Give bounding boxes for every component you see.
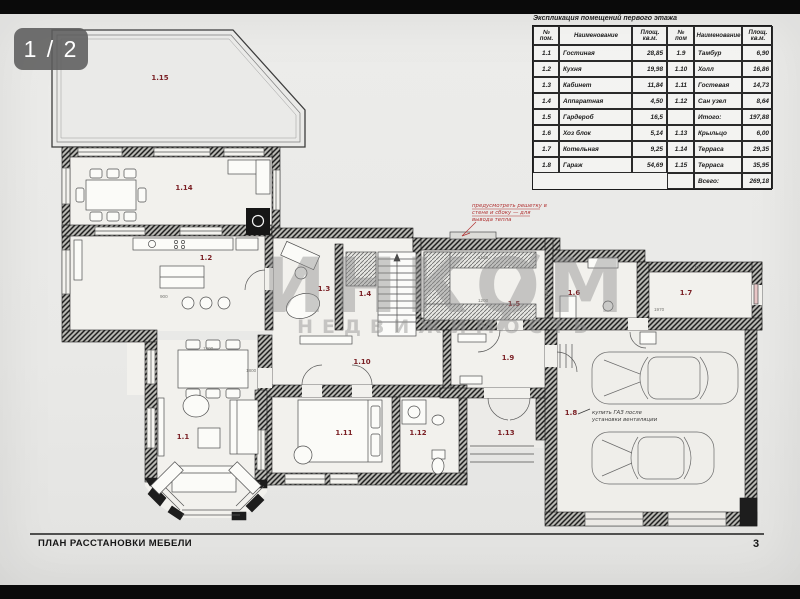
area-table-cell-r7c1: Гараж [559, 157, 632, 173]
area-table-cell-r8c4: Всего: [694, 173, 742, 189]
area-table-cell-r3c0: 1.4 [533, 93, 559, 109]
area-table-cell-r1c1: Кухня [559, 61, 632, 77]
svg-text:900: 900 [160, 294, 168, 299]
area-table-cell-r5c2: 5,14 [632, 125, 667, 141]
room-label-1-15: 1.15 [151, 74, 168, 82]
area-table-header-5: Площ. кв.м. [742, 26, 773, 45]
area-table-cell-r4c4: Итого: [694, 109, 742, 125]
area-table-cell-r5c0: 1.6 [533, 125, 559, 141]
area-table-cell-r3c5: 8,64 [742, 93, 773, 109]
area-table-cell-r4c2: 16,5 [632, 109, 667, 125]
area-table-cell-r6c0: 1.7 [533, 141, 559, 157]
area-table-cell-r6c1: Котельная [559, 141, 632, 157]
area-table-cell-r8c0 [533, 173, 559, 189]
sheet-page-number: 3 [753, 538, 759, 550]
area-table-cell-r2c4: Гостевая [694, 77, 742, 93]
room-label-1-8: 1.8 [565, 409, 578, 417]
area-table-cell-r3c1: Аппаратная [559, 93, 632, 109]
title-block: ПЛАН РАССТАНОВКИ МЕБЕЛИ 3 [30, 534, 764, 550]
area-table-cell-r1c3: 1.10 [667, 61, 694, 77]
svg-text:предусмотреть решетку в: предусмотреть решетку в [472, 203, 547, 209]
area-table-cell-r6c2: 9,25 [632, 141, 667, 157]
terrace-1-15 [52, 30, 305, 147]
room-label-1-9: 1.9 [502, 354, 515, 362]
room-label-1-10: 1.10 [353, 358, 370, 366]
area-table-header-2: Площ. кв.м. [632, 26, 667, 45]
area-table-cell-r7c4: Терраса [694, 157, 742, 173]
area-table-cell-r8c1 [559, 173, 632, 189]
room-label-1-13: 1.13 [497, 429, 514, 437]
sheet-title: ПЛАН РАССТАНОВКИ МЕБЕЛИ [38, 538, 192, 549]
room-area-table: Экспликация помещений первого этажа № по… [532, 15, 772, 190]
area-table-cell-r0c1: Гостиная [559, 45, 632, 61]
watermark-nedvizhimost: НЕДВИЖИМОСТЬ [297, 316, 597, 338]
area-table-cell-r1c2: 19,98 [632, 61, 667, 77]
area-table-header-4: Наименование [694, 26, 742, 45]
area-table-cell-r0c2: 28,85 [632, 45, 667, 61]
area-table-cell-r5c4: Крыльцо [694, 125, 742, 141]
room-label-1-12: 1.12 [409, 429, 426, 437]
room-label-1-1: 1.1 [177, 433, 190, 441]
area-table-header-3: № пом [667, 26, 694, 45]
area-table-cell-r2c3: 1.11 [667, 77, 694, 93]
area-table-cell-r5c3: 1.13 [667, 125, 694, 141]
area-table-cell-r4c0: 1.5 [533, 109, 559, 125]
area-table-cell-r0c0: 1.1 [533, 45, 559, 61]
svg-text:купить ГАЗ после: купить ГАЗ после [592, 410, 643, 416]
area-table-cell-r2c5: 14,73 [742, 77, 773, 93]
area-table-caption: Экспликация помещений первого этажа [533, 15, 772, 22]
room-label-1-2: 1.2 [200, 254, 213, 262]
area-table-cell-r5c5: 6,00 [742, 125, 773, 141]
area-table-cell-r3c2: 4,50 [632, 93, 667, 109]
area-table-cell-r8c3 [667, 173, 694, 189]
area-table-header-0: № пом. [533, 26, 559, 45]
area-table-cell-r6c5: 29,35 [742, 141, 773, 157]
area-table-cell-r1c4: Холл [694, 61, 742, 77]
room-label-1-7: 1.7 [680, 289, 693, 297]
page-indicator-badge: 1 / 2 [14, 28, 88, 70]
area-table-header-1: Наименование [559, 26, 632, 45]
fireplace [246, 208, 270, 235]
area-table-cell-r1c5: 16,86 [742, 61, 773, 77]
area-table-cell-r2c0: 1.3 [533, 77, 559, 93]
area-table-cell-r4c5: 197,88 [742, 109, 773, 125]
area-table-cell-r4c1: Гардероб [559, 109, 632, 125]
photo-viewer: 1 / 2 Экспликация помещений первого этаж… [0, 0, 800, 599]
room-label-1-11: 1.11 [335, 429, 352, 437]
area-table-cell-r8c5: 269,18 [742, 173, 773, 189]
area-table-cell-r0c3: 1.9 [667, 45, 694, 61]
area-table-cell-r2c2: 11,84 [632, 77, 667, 93]
watermark: ИНКОМ НЕДВИЖИМОСТЬ [262, 241, 632, 338]
area-table-cell-r5c1: Хоз блок [559, 125, 632, 141]
area-table-cell-r7c2: 54,69 [632, 157, 667, 173]
area-table-cell-r7c0: 1.8 [533, 157, 559, 173]
heat-grille-note: предусмотреть решетку в стене и сбоку — … [462, 203, 547, 236]
area-table-cell-r0c5: 6,90 [742, 45, 773, 61]
svg-text:1800: 1800 [246, 368, 257, 373]
area-table-cell-r3c4: Сан узел [694, 93, 742, 109]
svg-text:вывода тепла: вывода тепла [472, 217, 511, 223]
area-table-cell-r2c1: Кабинет [559, 77, 632, 93]
area-table-grid: № пом.НаименованиеПлощ. кв.м.№ помНаимен… [532, 25, 772, 190]
area-table-cell-r0c4: Тамбур [694, 45, 742, 61]
svg-text:установки вентиляции: установки вентиляции [591, 417, 658, 423]
area-table-cell-r1c0: 1.2 [533, 61, 559, 77]
svg-text:1400: 1400 [203, 346, 214, 351]
room-label-1-14: 1.14 [175, 184, 192, 192]
area-table-cell-r8c2 [632, 173, 667, 189]
area-table-cell-r7c5: 35,95 [742, 157, 773, 173]
svg-text:1970: 1970 [654, 307, 665, 312]
area-table-cell-r6c3: 1.14 [667, 141, 694, 157]
area-table-cell-r3c3: 1.12 [667, 93, 694, 109]
svg-text:700: 700 [694, 265, 702, 270]
svg-text:стене и сбоку — для: стене и сбоку — для [472, 210, 531, 216]
area-table-cell-r7c3: 1.15 [667, 157, 694, 173]
area-table-cell-r4c3 [667, 109, 694, 125]
area-table-cell-r6c4: Терраса [694, 141, 742, 157]
